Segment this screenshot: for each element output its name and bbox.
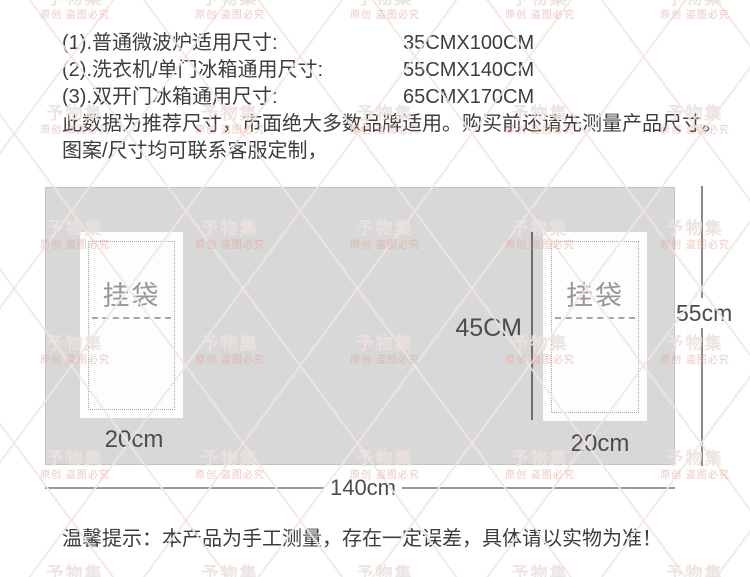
spec-label: (2).洗衣机/单门冰箱通用尺寸: (62, 59, 323, 81)
spec-label: (1).普通微波炉适用尺寸: (62, 32, 278, 54)
measurement-disclaimer: 温馨提示：本产品为手工测量，存在一定误差，具体请以实物为准！ (62, 522, 662, 551)
size-spec-list: (1).普通微波炉适用尺寸: 35CMX100CM (2).洗衣机/单门冰箱通用… (62, 30, 712, 165)
watermark: 予物集原创 盗图必究 (640, 565, 750, 577)
pocket-width-label-left: 20cm (98, 426, 170, 454)
product-size-chart-page: (1).普通微波炉适用尺寸: 35CMX100CM (2).洗衣机/单门冰箱通用… (0, 0, 750, 577)
pocket-stitch-border (551, 241, 639, 413)
pocket-label: 挂袋 (543, 274, 647, 313)
watermark: 予物集原创 盗图必究 (330, 0, 440, 22)
spec-row-double-door-fridge: (3).双开门冰箱通用尺寸: 65CMX170CM (62, 84, 712, 111)
watermark: 予物集原创 盗图必究 (20, 565, 130, 577)
hanging-pocket-right: 挂袋 (543, 232, 647, 421)
pocket-width-label-right: 20cm (564, 430, 636, 458)
pocket-flap-line (555, 317, 635, 319)
spec-value: 65CMX170CM (403, 84, 534, 111)
spec-value: 35CMX100CM (403, 30, 534, 57)
pocket-stitch-border (88, 241, 175, 410)
watermark: 予物集原创 盗图必究 (20, 0, 130, 22)
hanging-pocket-left: 挂袋 (80, 232, 183, 418)
watermark: 予物集原创 盗图必究 (175, 0, 285, 22)
spec-note-line2: 图案/尺寸均可联系客服定制， (62, 138, 712, 165)
pocket-label: 挂袋 (80, 274, 183, 313)
spec-row-washer-fridge: (2).洗衣机/单门冰箱通用尺寸: 55CMX140CM (62, 57, 712, 84)
watermark: 予物集原创 盗图必究 (640, 0, 750, 22)
spec-row-microwave: (1).普通微波炉适用尺寸: 35CMX100CM (62, 30, 712, 57)
spec-note-line1: 此数据为推荐尺寸，市面绝大多数品牌适用。购买前还请先测量产品尺寸。 (62, 111, 712, 138)
watermark: 予物集原创 盗图必究 (175, 565, 285, 577)
inner-height-label: 45CM (452, 314, 522, 343)
inner-height-dimension-line (531, 232, 533, 420)
total-height-label: 55cm (676, 298, 732, 328)
spec-value: 55CMX140CM (403, 57, 534, 84)
cover-diagram-panel: 挂袋 挂袋 (45, 187, 675, 465)
watermark: 予物集原创 盗图必究 (330, 565, 440, 577)
spec-label: (3).双开门冰箱通用尺寸: (62, 86, 278, 108)
pocket-flap-line (92, 317, 171, 319)
watermark: 予物集原创 盗图必究 (485, 0, 595, 22)
total-width-label: 140cm (324, 475, 402, 501)
watermark: 予物集原创 盗图必究 (485, 565, 595, 577)
